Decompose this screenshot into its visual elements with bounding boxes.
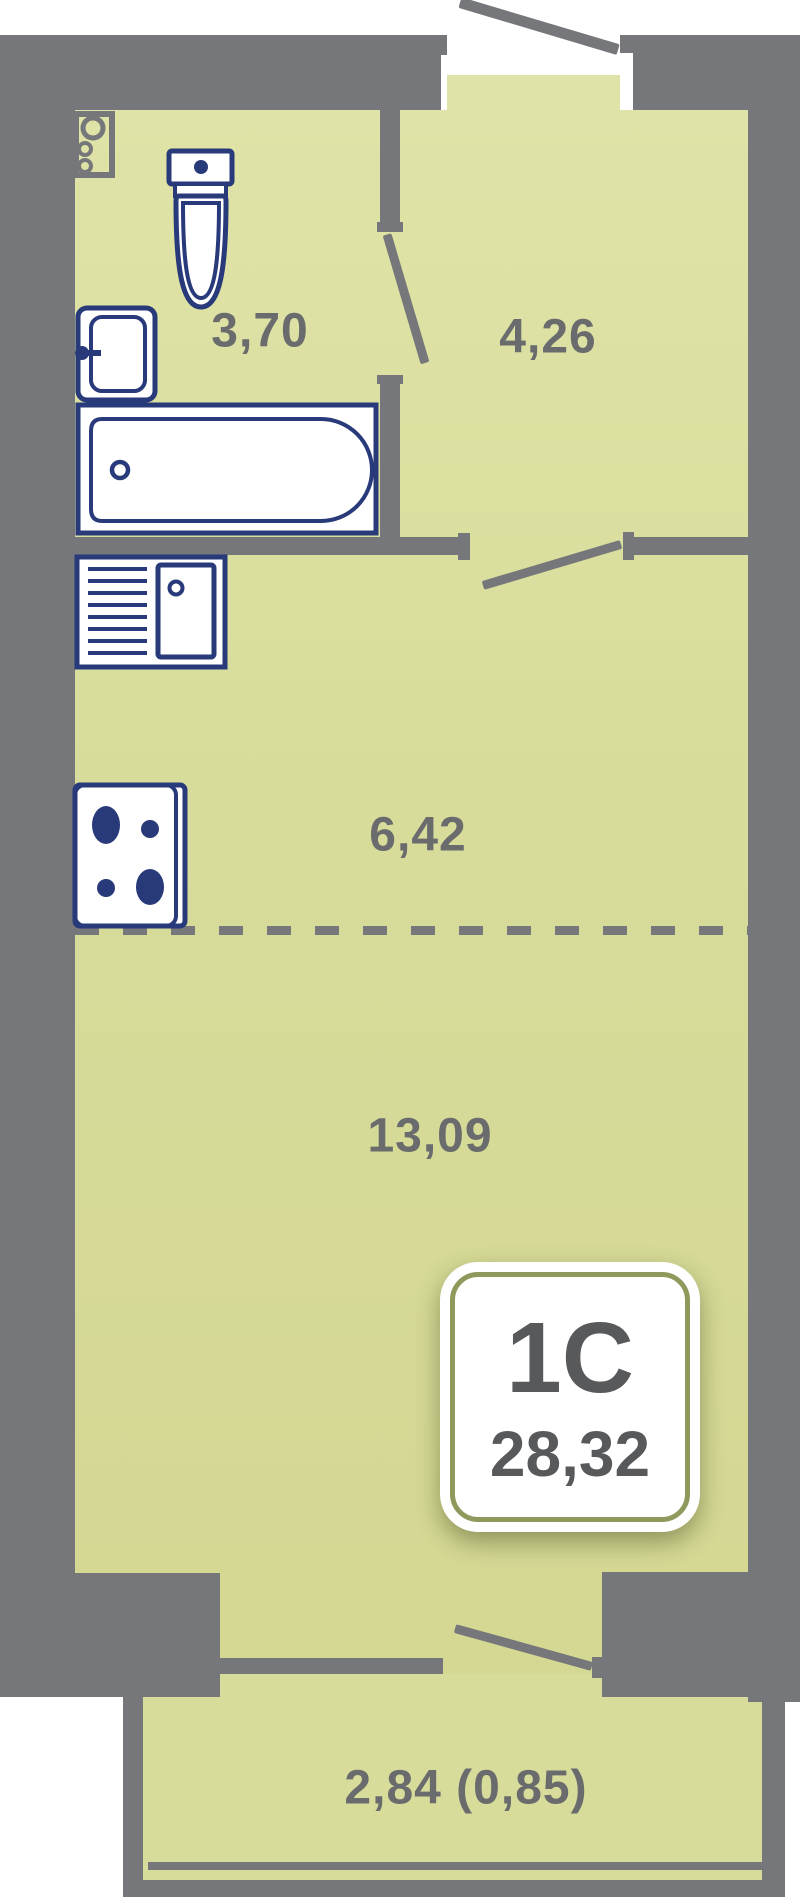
kitchen-door-jamb-right [623,532,634,560]
hallway-area-label: 4,26 [499,310,596,365]
kitchen-area-label: 6,42 [369,808,466,863]
utility-riser-icon [73,111,117,179]
entry-threshold-floor [447,75,620,115]
toilet-icon [166,148,236,310]
stove-icon [73,783,191,930]
right-outer-wall [748,35,800,1702]
living-room-area-label: 13,09 [367,1109,492,1164]
balcony-area-label: 2,84 (0,85) [344,1761,587,1816]
bathroom-door-jamb-bottom [377,375,403,384]
bathtub-icon [76,403,380,537]
floor-plan: 3,70 4,26 6,42 13,09 2,84 (0,85) 1С 28,3… [0,0,800,1897]
entry-jamb-left [433,35,447,55]
bathroom-wall-lower [380,375,400,537]
balcony-door-jamb [592,1657,602,1678]
left-outer-wall [0,35,75,1697]
kitchen-sink-icon [75,555,227,669]
apartment-badge-ring: 1С 28,32 [450,1272,690,1522]
apartment-total-area: 28,32 [490,1422,650,1486]
balcony-left-wall [123,1697,143,1897]
bottom-right-wall-block [602,1572,748,1697]
bathroom-wall-upper [380,110,400,232]
kitchen-wall-left [75,537,465,555]
kitchen-door-jamb-left [458,533,470,560]
kitchen-wall-right [623,537,748,555]
bottom-left-wall-block [0,1573,220,1697]
window-line [220,1658,443,1674]
entry-jamb-right [620,35,633,53]
balcony-glazing-line [148,1862,762,1870]
apartment-type: 1С [506,1308,634,1408]
balcony-right-wall [762,1697,785,1897]
entry-door-leaf [458,0,619,55]
balcony-outer-wall [135,1880,785,1897]
window-bay-floor [220,1571,443,1658]
apartment-badge: 1С 28,32 [440,1262,700,1532]
bathroom-door-jamb-top [377,222,403,232]
bathroom-area-label: 3,70 [211,304,308,359]
wash-basin-icon [75,305,159,403]
